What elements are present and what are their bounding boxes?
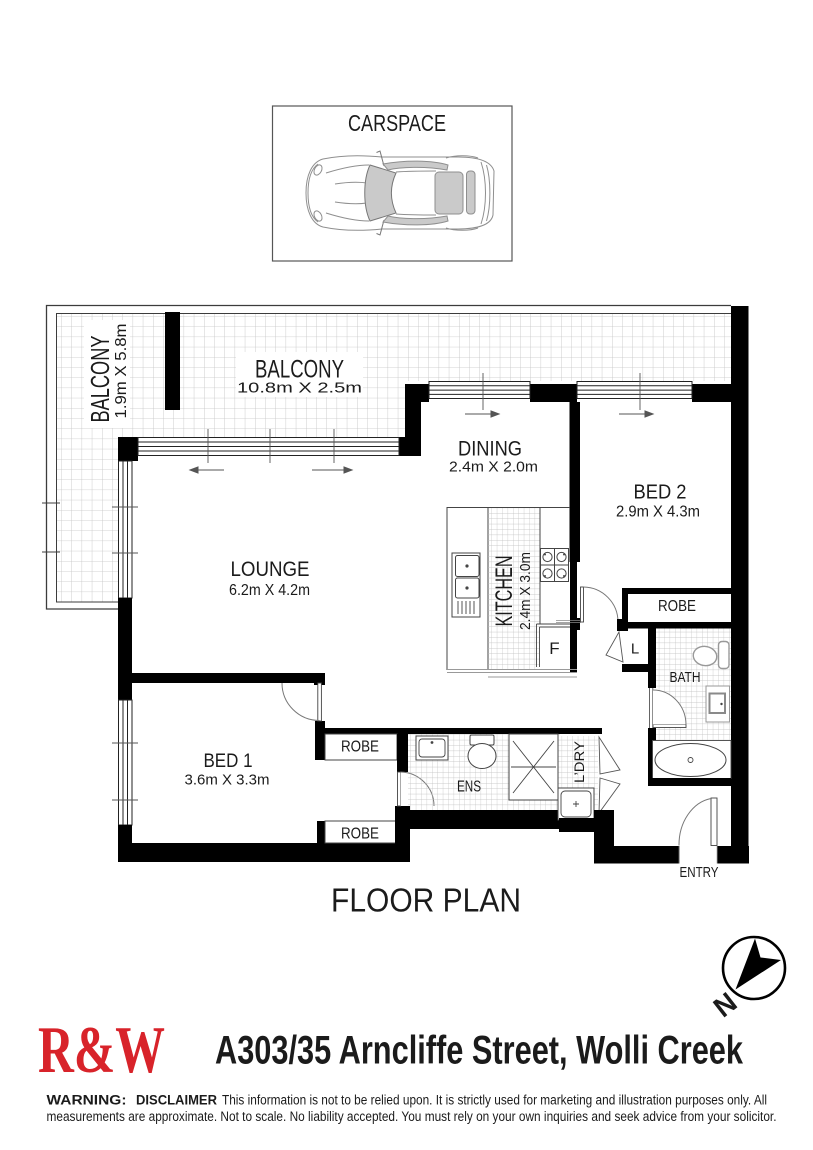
svg-text:R&W: R&W — [38, 1013, 165, 1087]
svg-text:ENS: ENS — [457, 779, 481, 796]
svg-text:ROBE: ROBE — [341, 826, 379, 843]
svg-text:ROBE: ROBE — [658, 598, 696, 615]
svg-text:10.8m X 2.5m: 10.8m X 2.5m — [237, 380, 362, 397]
svg-text:3.6m X 3.3m: 3.6m X 3.3m — [185, 772, 270, 789]
svg-text:1.9m X 5.8m: 1.9m X 5.8m — [113, 324, 130, 419]
svg-text:BED 1: BED 1 — [204, 751, 253, 772]
svg-text:L’DRY: L’DRY — [571, 740, 587, 783]
svg-text:2.9m X 4.3m: 2.9m X 4.3m — [616, 504, 700, 521]
svg-text:ROBE: ROBE — [341, 739, 379, 756]
svg-text:DISCLAIMER: DISCLAIMER — [136, 1093, 217, 1108]
svg-text:BATH: BATH — [670, 669, 701, 686]
svg-text:FLOOR PLAN: FLOOR PLAN — [331, 883, 521, 920]
svg-text:A303/35 Arncliffe Street, Woll: A303/35 Arncliffe Street, Wolli Creek — [215, 1029, 744, 1073]
svg-text:ENTRY: ENTRY — [680, 864, 719, 881]
svg-text:This information is not to be: This information is not to be relied upo… — [222, 1093, 767, 1108]
svg-text:WARNING:: WARNING: — [47, 1093, 127, 1108]
svg-text:2.4m X 2.0m: 2.4m X 2.0m — [449, 459, 538, 476]
svg-text:BED 2: BED 2 — [634, 482, 687, 504]
svg-text:DINING: DINING — [458, 438, 522, 461]
svg-text:2.4m X 3.0m: 2.4m X 3.0m — [517, 552, 534, 630]
svg-text:KITCHEN: KITCHEN — [491, 556, 518, 627]
svg-text:CARSPACE: CARSPACE — [348, 110, 446, 136]
svg-text:6.2m X 4.2m: 6.2m X 4.2m — [229, 582, 310, 599]
svg-text:LOUNGE: LOUNGE — [231, 558, 310, 581]
svg-text:F: F — [549, 639, 559, 658]
svg-text:L: L — [631, 641, 639, 658]
svg-text:BALCONY: BALCONY — [85, 336, 115, 423]
svg-text:measurements are approximate.: measurements are approximate. Not to sca… — [47, 1109, 777, 1124]
